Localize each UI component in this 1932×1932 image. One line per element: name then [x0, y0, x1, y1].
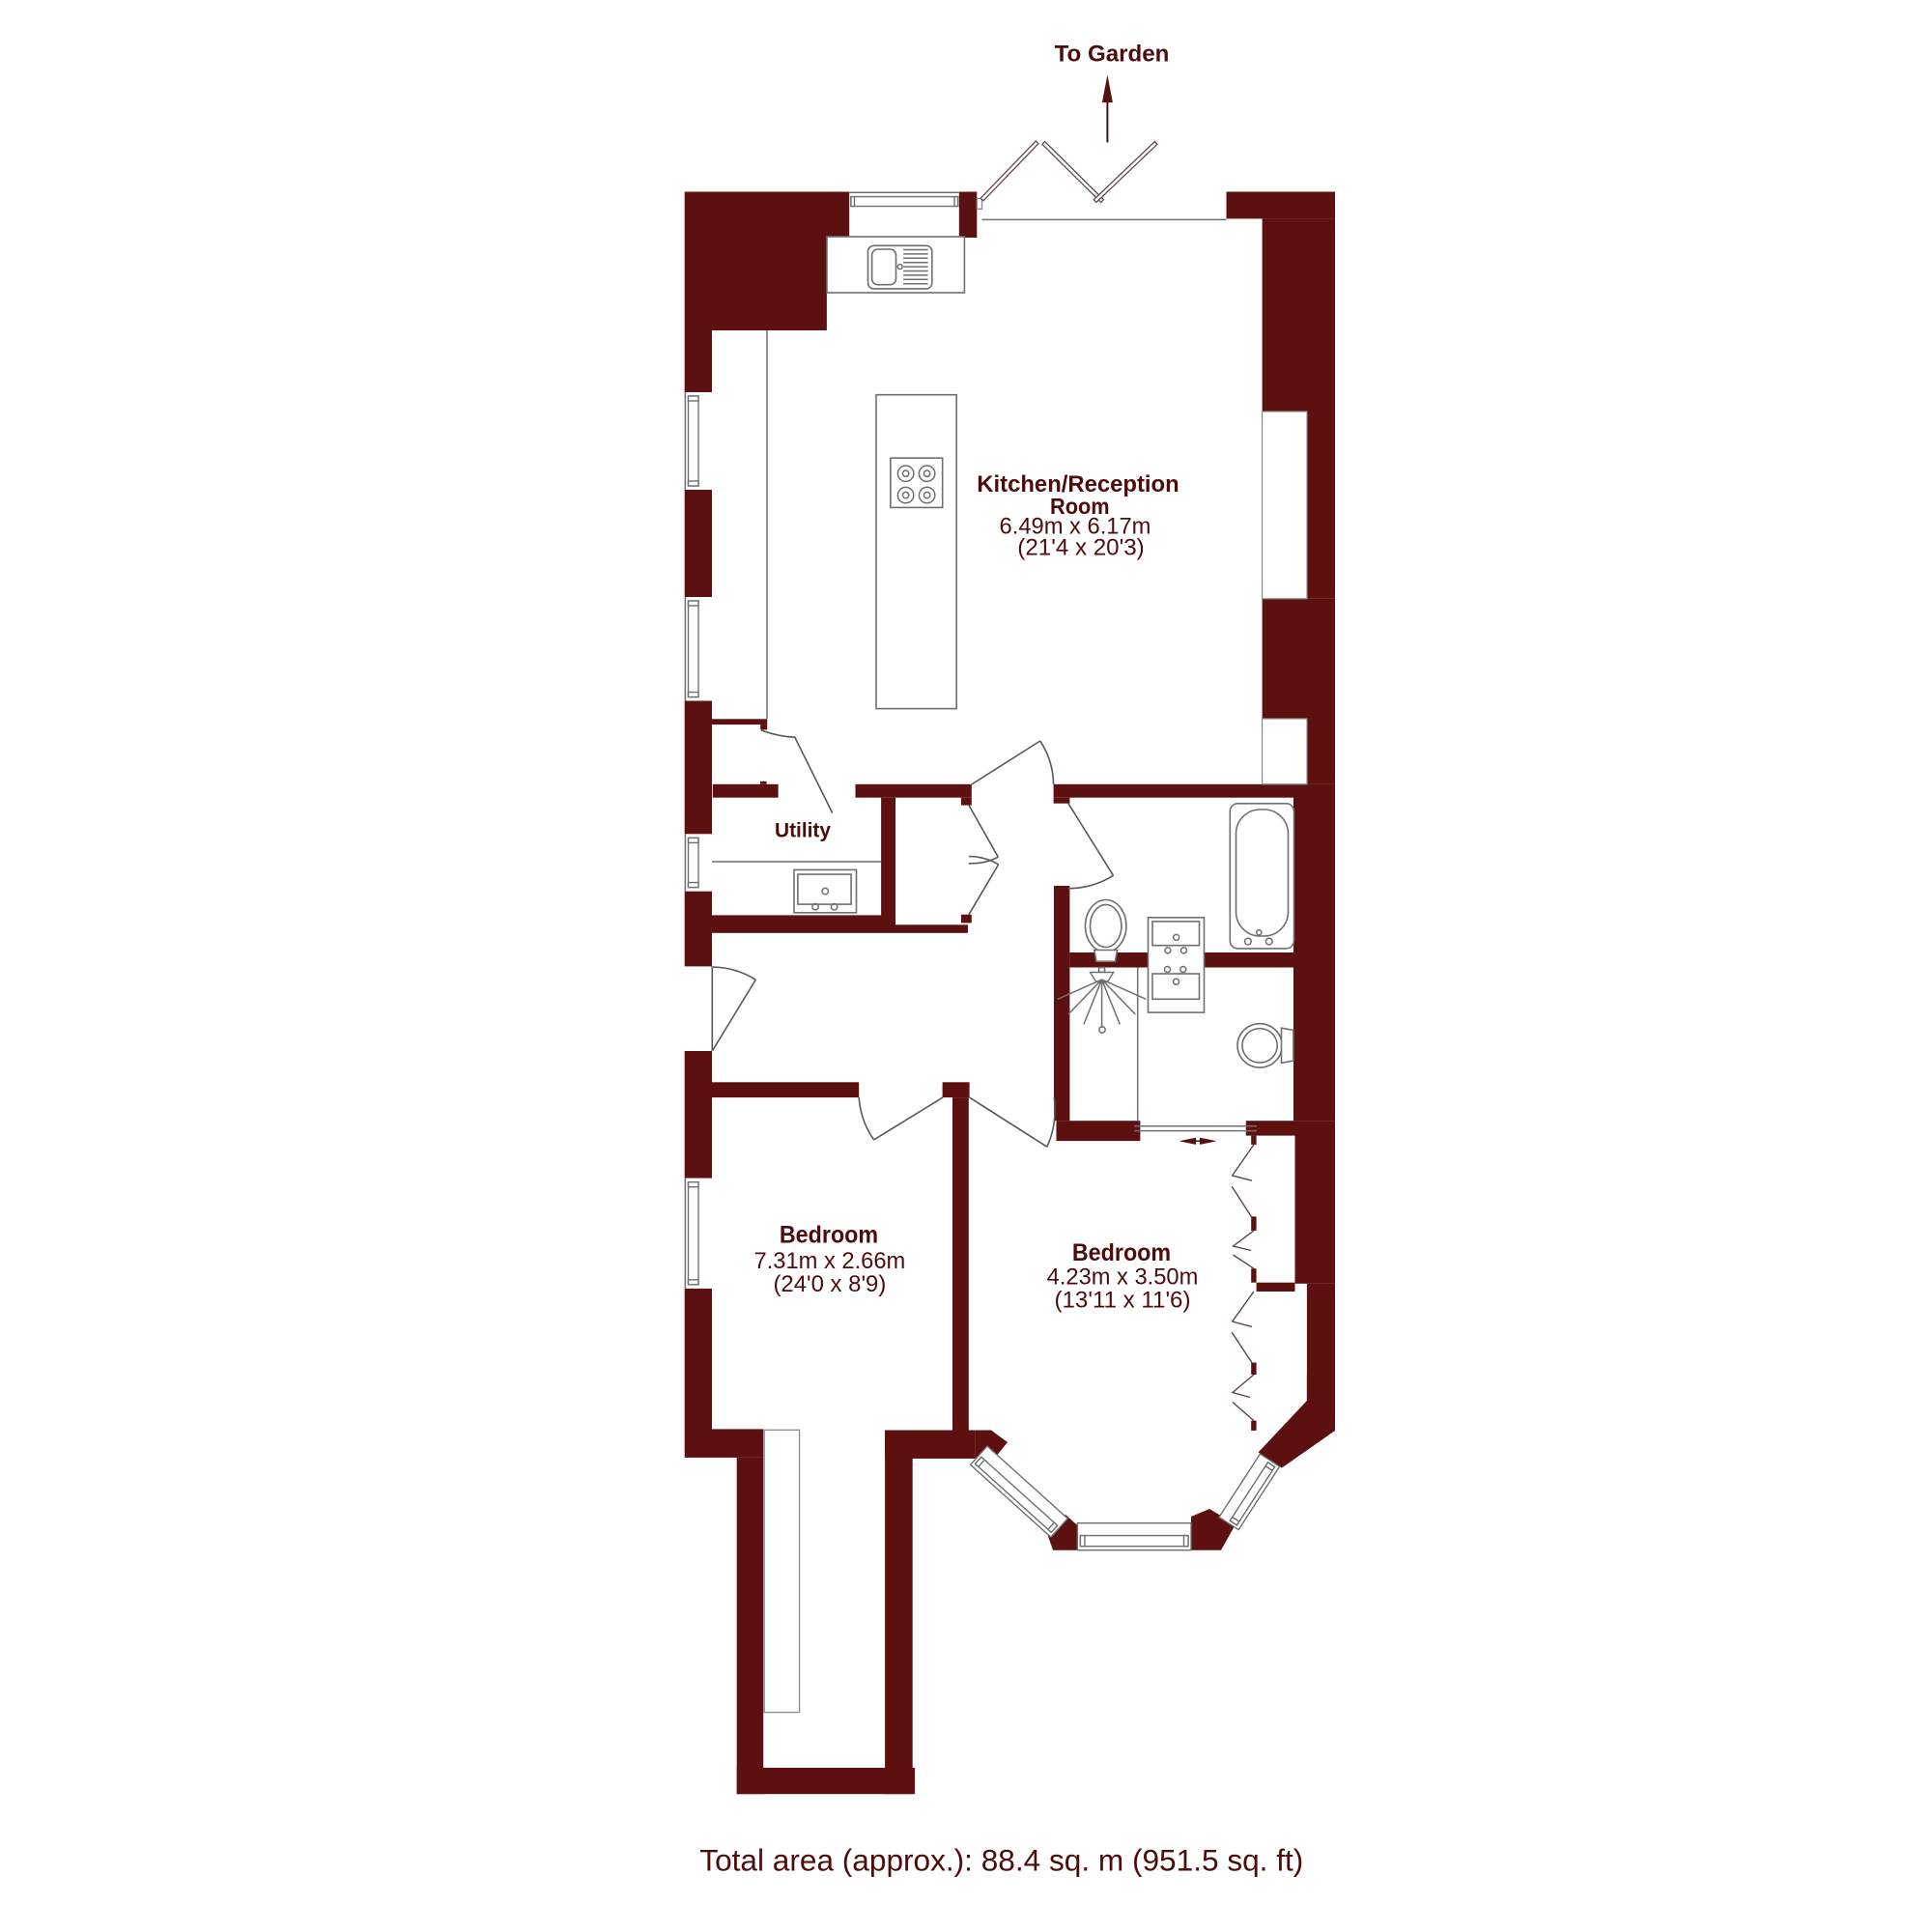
svg-text:Total area (approx.): 88.4 sq.: Total area (approx.): 88.4 sq. m (951.5 …	[699, 1843, 1303, 1878]
svg-text:Bedroom: Bedroom	[1072, 1239, 1171, 1266]
svg-text:Bedroom: Bedroom	[780, 1222, 878, 1249]
svg-text:(24'0 x 8'9): (24'0 x 8'9)	[773, 1271, 886, 1297]
svg-text:(21'4 x 20'3): (21'4 x 20'3)	[1017, 534, 1144, 560]
svg-text:(13'11 x 11'6): (13'11 x 11'6)	[1055, 1287, 1191, 1313]
svg-text:Utility: Utility	[775, 820, 831, 842]
svg-text:To Garden: To Garden	[1055, 42, 1170, 68]
